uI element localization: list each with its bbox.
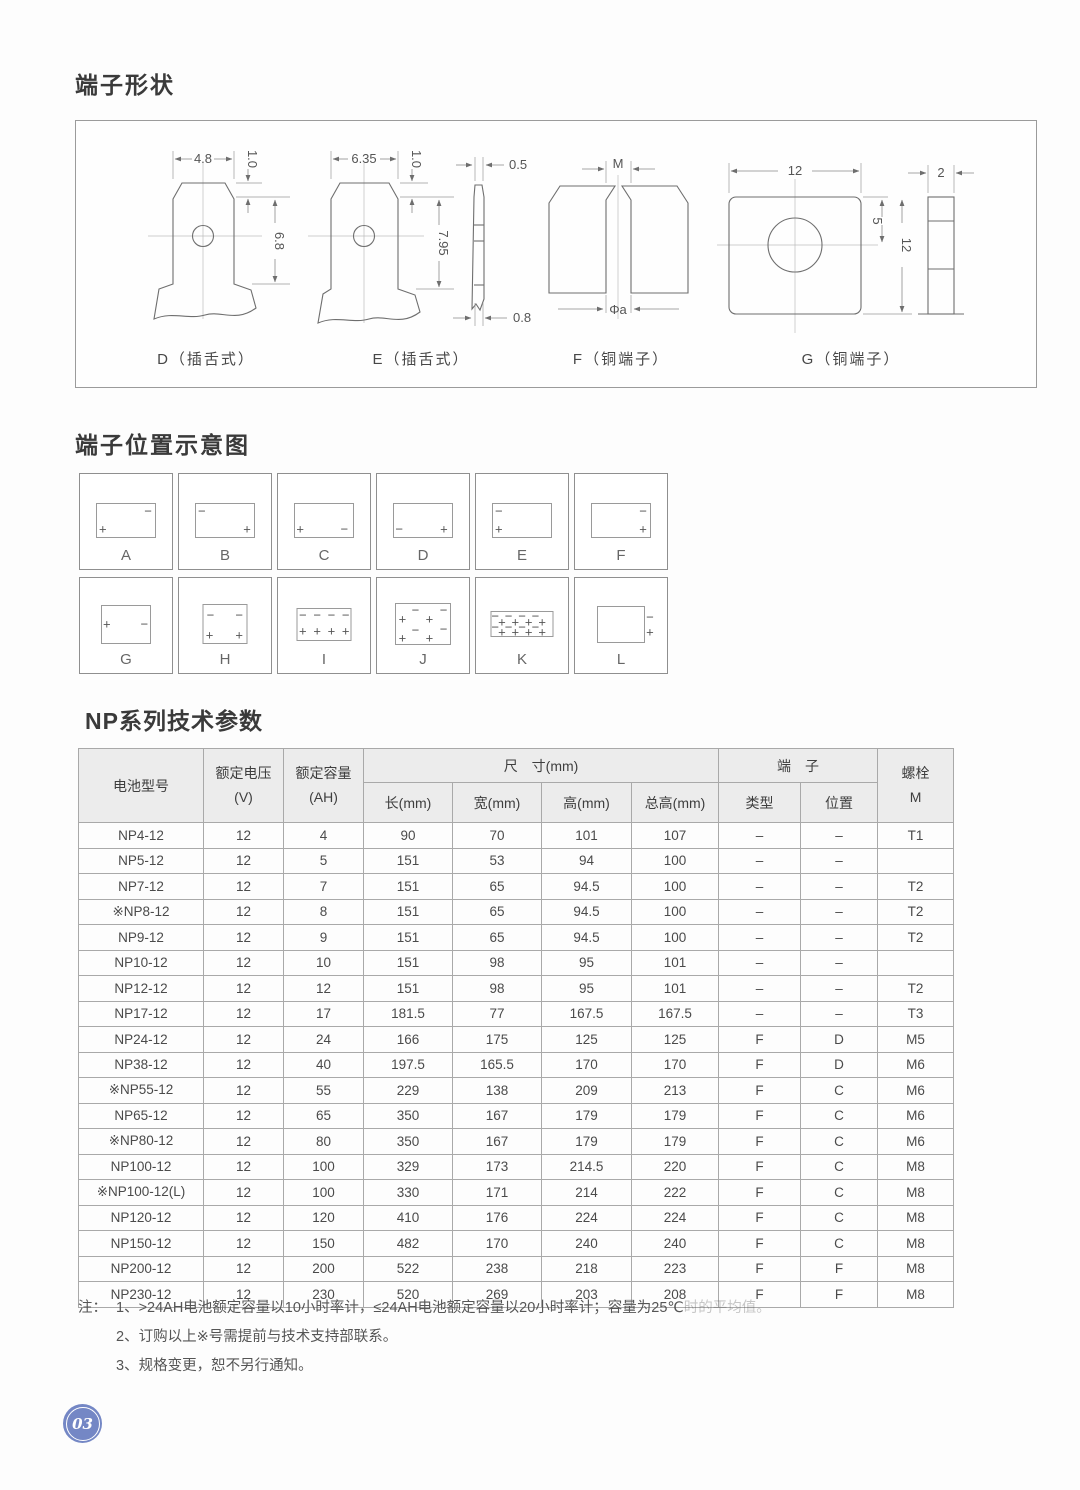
table-cell: T2 — [878, 925, 954, 951]
table-cell: 410 — [364, 1205, 453, 1231]
table-cell: 12 — [204, 950, 284, 976]
caption-f: F（铜端子） — [573, 351, 669, 368]
battery-outline: −−++ — [203, 604, 248, 644]
table-cell: 213 — [632, 1078, 719, 1104]
table-cell: 65 — [284, 1103, 364, 1129]
table-cell: 151 — [364, 848, 453, 874]
table-row: NP4-121249070101107––T1 — [79, 823, 954, 849]
table-cell: 100 — [632, 899, 719, 925]
col-header-bolt: 螺栓 M — [878, 749, 954, 823]
polarity-mark: + — [646, 625, 654, 638]
table-cell: NP150-12 — [79, 1231, 204, 1257]
table-cell: C — [801, 1205, 878, 1231]
table-cell: – — [801, 950, 878, 976]
table-cell: 12 — [204, 823, 284, 849]
position-cell-A: +−A — [79, 473, 173, 570]
col-header-bolt-line1: 螺栓 — [878, 762, 953, 785]
table-cell: 100 — [632, 925, 719, 951]
polarity-mark: − — [412, 623, 420, 636]
table-cell: 170 — [632, 1052, 719, 1078]
table-cell: 12 — [204, 899, 284, 925]
dim-d-width: 4.8 — [194, 151, 212, 166]
table-cell: 166 — [364, 1027, 453, 1053]
table-cell: 223 — [632, 1256, 719, 1282]
caption-e: E（插舌式） — [372, 351, 469, 368]
position-cell-D: −+D — [376, 473, 470, 570]
note-line-3: 3、规格变更，恕不另行通知。 — [78, 1352, 988, 1381]
table-cell: T2 — [878, 899, 954, 925]
drawing-e-side-profile: 0.5 0.8 — [453, 157, 531, 326]
table-cell: M6 — [878, 1078, 954, 1104]
table-row: NP200-1212200522238218223FFM8 — [79, 1256, 954, 1282]
table-cell: 522 — [364, 1256, 453, 1282]
table-cell: 65 — [453, 874, 542, 900]
table-cell: 167.5 — [632, 1001, 719, 1027]
table-cell: 229 — [364, 1078, 453, 1104]
position-label: G — [80, 651, 172, 668]
table-cell: NP24-12 — [79, 1027, 204, 1053]
notes: 注： 1、>24AH电池额定容量以10小时率计，≤24AH电池额定容量以20小时… — [78, 1294, 988, 1381]
polarity-mark: + — [299, 625, 307, 638]
table-cell: 100 — [284, 1180, 364, 1206]
battery-outline: −−−−++++ — [297, 608, 352, 641]
table-cell: F — [719, 1256, 801, 1282]
table-row: NP12-1212121519895101––T2 — [79, 976, 954, 1002]
table-cell: ※NP100-12(L) — [79, 1180, 204, 1206]
col-header-terminal-position: 位置 — [801, 783, 878, 823]
table-cell: 170 — [453, 1231, 542, 1257]
polarity-mark: + — [426, 613, 434, 626]
table-cell: 95 — [542, 976, 632, 1002]
table-cell: M8 — [878, 1256, 954, 1282]
table-cell: F — [719, 1231, 801, 1257]
table-cell: 12 — [204, 1154, 284, 1180]
terminal-shapes-panel: 4.8 1.0 6.8 D（插舌式） 6.35 — [75, 120, 1037, 388]
table-cell: – — [719, 823, 801, 849]
table-cell: ※NP8-12 — [79, 899, 204, 925]
table-cell: 12 — [204, 848, 284, 874]
dim-e-side-bottom: 0.8 — [513, 310, 531, 325]
dim-e-width: 6.35 — [351, 151, 376, 166]
table-cell: – — [719, 1001, 801, 1027]
table-cell: M6 — [878, 1052, 954, 1078]
table-cell: 173 — [453, 1154, 542, 1180]
col-group-terminal: 端 子 — [719, 749, 878, 783]
table-cell: 10 — [284, 950, 364, 976]
battery-outline: −+ — [597, 606, 645, 643]
polarity-mark: − — [341, 522, 349, 535]
table-cell: 482 — [364, 1231, 453, 1257]
table-cell: C — [801, 1154, 878, 1180]
table-cell: 24 — [284, 1027, 364, 1053]
battery-outline: −+ — [591, 503, 651, 538]
table-cell: T2 — [878, 976, 954, 1002]
page-number: 03 — [66, 1407, 100, 1441]
table-cell: 150 — [284, 1231, 364, 1257]
position-label: F — [575, 547, 667, 564]
table-cell: 40 — [284, 1052, 364, 1078]
position-cell-G: +−G — [79, 577, 173, 674]
drawing-f-terminal: M Φa F（铜端子） — [549, 156, 688, 368]
table-cell: 12 — [204, 1231, 284, 1257]
note-1-text: 1、>24AH电池额定容量以10小时率计，≤24AH电池额定容量以20小时率计；… — [116, 1300, 684, 1316]
table-cell: 7 — [284, 874, 364, 900]
table-cell: 240 — [542, 1231, 632, 1257]
table-cell: 181.5 — [364, 1001, 453, 1027]
position-label: L — [575, 651, 667, 668]
table-cell: 179 — [542, 1103, 632, 1129]
table-cell: – — [801, 848, 878, 874]
table-cell: 12 — [204, 1052, 284, 1078]
table-cell: 95 — [542, 950, 632, 976]
table-cell: 218 — [542, 1256, 632, 1282]
table-cell: – — [719, 899, 801, 925]
position-row-1: +−A−+B+−C−+D−+E−+F — [79, 473, 668, 570]
table-cell: M6 — [878, 1103, 954, 1129]
polarity-mark: + — [639, 523, 647, 536]
table-cell: – — [801, 823, 878, 849]
table-cell: D — [801, 1052, 878, 1078]
table-cell: F — [719, 1129, 801, 1155]
table-cell: NP7-12 — [79, 874, 204, 900]
table-cell: NP100-12 — [79, 1154, 204, 1180]
table-cell: NP120-12 — [79, 1205, 204, 1231]
table-row: NP10-1212101519895101–– — [79, 950, 954, 976]
table-row: ※NP55-121255229138209213FCM6 — [79, 1078, 954, 1104]
dim-f-hole: Φa — [609, 302, 627, 317]
table-cell: 151 — [364, 899, 453, 925]
col-header-height: 高(mm) — [542, 783, 632, 823]
table-cell: 12 — [204, 976, 284, 1002]
table-cell — [878, 950, 954, 976]
table-cell: 53 — [453, 848, 542, 874]
position-cell-J: +−+−+−+−J — [376, 577, 470, 674]
polarity-mark: + — [399, 632, 407, 645]
col-header-voltage-line1: 额定电压 — [204, 762, 283, 785]
table-cell: C — [801, 1078, 878, 1104]
table-cell: 220 — [632, 1154, 719, 1180]
position-cell-B: −+B — [178, 473, 272, 570]
table-cell: 65 — [453, 899, 542, 925]
table-cell: 80 — [284, 1129, 364, 1155]
polarity-mark: + — [342, 625, 350, 638]
table-cell: 100 — [632, 848, 719, 874]
dim-g-side-width: 2 — [937, 165, 944, 180]
polarity-mark: + — [426, 632, 434, 645]
table-cell: 138 — [453, 1078, 542, 1104]
dim-g-height: 12 — [899, 238, 914, 252]
battery-outline: −+−+−+−+−+−+−+−+ — [491, 611, 554, 637]
table-cell: 101 — [542, 823, 632, 849]
col-header-total-height: 总高(mm) — [632, 783, 719, 823]
table-cell: 179 — [542, 1129, 632, 1155]
table-row: NP7-121271516594.5100––T2 — [79, 874, 954, 900]
col-header-capacity: 额定容量 (AH) — [284, 749, 364, 823]
col-group-dimensions: 尺 寸(mm) — [364, 749, 719, 783]
table-cell: F — [719, 1154, 801, 1180]
table-cell: NP17-12 — [79, 1001, 204, 1027]
col-header-bolt-line2: M — [878, 786, 953, 809]
table-cell: 12 — [204, 1256, 284, 1282]
table-cell: 176 — [453, 1205, 542, 1231]
dim-d-height: 6.8 — [272, 232, 287, 250]
table-cell: 222 — [632, 1180, 719, 1206]
table-cell: 94.5 — [542, 899, 632, 925]
position-cell-H: −−++H — [178, 577, 272, 674]
table-cell: 70 — [453, 823, 542, 849]
table-cell: M8 — [878, 1231, 954, 1257]
table-cell: M8 — [878, 1180, 954, 1206]
table-cell: 5 — [284, 848, 364, 874]
table-cell: 12 — [204, 1001, 284, 1027]
table-cell: 125 — [632, 1027, 719, 1053]
table-cell: 12 — [204, 1205, 284, 1231]
battery-outline: −+ — [393, 503, 453, 538]
polarity-mark: − — [140, 618, 148, 631]
table-cell: NP4-12 — [79, 823, 204, 849]
table-cell: 224 — [632, 1205, 719, 1231]
terminal-position-grid: +−A−+B+−C−+D−+E−+F +−G−−++H−−−−++++I+−+−… — [79, 473, 668, 681]
polarity-mark: − — [440, 622, 448, 635]
polarity-mark: + — [235, 629, 243, 642]
table-cell: 167.5 — [542, 1001, 632, 1027]
polarity-mark: + — [328, 625, 336, 638]
position-label: E — [476, 547, 568, 564]
dim-d-thickness: 1.0 — [245, 150, 260, 168]
table-cell: C — [801, 1180, 878, 1206]
table-cell: 151 — [364, 950, 453, 976]
polarity-mark: − — [235, 608, 243, 621]
table-cell: F — [719, 1052, 801, 1078]
polarity-mark: − — [207, 608, 215, 621]
note-1-faded-text: 时的平均值。 — [684, 1300, 771, 1316]
page: 端子形状 4.8 — [0, 0, 1080, 1490]
table-cell: 55 — [284, 1078, 364, 1104]
table-cell: ※NP80-12 — [79, 1129, 204, 1155]
table-cell: 151 — [364, 925, 453, 951]
table-cell: NP9-12 — [79, 925, 204, 951]
position-label: J — [377, 651, 469, 668]
polarity-mark: + — [243, 523, 251, 536]
table-cell: D — [801, 1027, 878, 1053]
table-cell: 350 — [364, 1129, 453, 1155]
table-cell: – — [801, 874, 878, 900]
polarity-mark: − — [440, 603, 448, 616]
table-cell: 12 — [204, 1027, 284, 1053]
terminal-shapes-drawing: 4.8 1.0 6.8 D（插舌式） 6.35 — [76, 121, 1036, 387]
table-cell: – — [719, 925, 801, 951]
table-cell: F — [719, 1078, 801, 1104]
col-header-model: 电池型号 — [79, 749, 204, 823]
table-cell: 330 — [364, 1180, 453, 1206]
caption-d: D（插舌式） — [157, 351, 255, 368]
polarity-mark: + — [495, 523, 503, 536]
battery-outline: +− — [294, 503, 354, 538]
col-header-capacity-line2: (AH) — [284, 786, 363, 809]
battery-outline: −+ — [195, 503, 255, 538]
drawing-e-terminal: 6.35 1.0 7.95 E（插舌式） — [308, 150, 470, 368]
table-cell: 77 — [453, 1001, 542, 1027]
table-cell: 12 — [204, 1180, 284, 1206]
table-cell: – — [719, 874, 801, 900]
table-cell: – — [801, 976, 878, 1002]
position-row-2: +−G−−++H−−−−++++I+−+−+−+−J−+−+−+−+−+−+−+… — [79, 577, 668, 674]
table-cell: 107 — [632, 823, 719, 849]
position-label: B — [179, 547, 271, 564]
table-row: NP38-121240197.5165.5170170FDM6 — [79, 1052, 954, 1078]
polarity-mark: − — [313, 609, 321, 622]
note-line-1: 注： 1、>24AH电池额定容量以10小时率计，≤24AH电池额定容量以20小时… — [78, 1294, 988, 1323]
table-cell: 240 — [632, 1231, 719, 1257]
spec-table-body: NP4-121249070101107––T1NP5-1212515153941… — [79, 823, 954, 1308]
table-cell: C — [801, 1129, 878, 1155]
table-cell: 94 — [542, 848, 632, 874]
table-cell: NP10-12 — [79, 950, 204, 976]
polarity-mark: − — [299, 609, 307, 622]
table-cell: 200 — [284, 1256, 364, 1282]
table-cell: 98 — [453, 950, 542, 976]
table-cell: 12 — [284, 976, 364, 1002]
table-cell: NP38-12 — [79, 1052, 204, 1078]
table-cell: 100 — [284, 1154, 364, 1180]
note-3-text: 3、规格变更，恕不另行通知。 — [116, 1358, 313, 1374]
table-cell: – — [801, 1001, 878, 1027]
table-cell: T1 — [878, 823, 954, 849]
dim-e-height: 7.95 — [436, 230, 451, 255]
battery-outline: −+ — [492, 503, 552, 538]
col-header-capacity-line1: 额定容量 — [284, 762, 363, 785]
table-cell: 151 — [364, 976, 453, 1002]
polarity-mark: − — [198, 504, 206, 517]
table-cell: 12 — [204, 1078, 284, 1104]
col-header-voltage-line2: (V) — [204, 786, 283, 809]
polarity-mark: + — [296, 522, 304, 535]
dim-g-offset: 5 — [870, 217, 885, 224]
table-cell: M6 — [878, 1129, 954, 1155]
section-title-np-parameters: NP系列技术参数 — [85, 702, 263, 736]
table-row: NP65-121265350167179179FCM6 — [79, 1103, 954, 1129]
position-label: K — [476, 651, 568, 668]
position-cell-I: −−−−++++I — [277, 577, 371, 674]
position-label: D — [377, 547, 469, 564]
table-cell: 179 — [632, 1129, 719, 1155]
table-cell: 65 — [453, 925, 542, 951]
polarity-mark: + — [313, 625, 321, 638]
table-cell: F — [719, 1027, 801, 1053]
table-cell: M8 — [878, 1205, 954, 1231]
battery-outline: +− — [96, 503, 156, 538]
table-cell: 214 — [542, 1180, 632, 1206]
table-row: ※NP100-12(L)12100330171214222FCM8 — [79, 1180, 954, 1206]
polarity-mark: − — [144, 504, 152, 517]
table-row: NP9-121291516594.5100––T2 — [79, 925, 954, 951]
table-cell: 90 — [364, 823, 453, 849]
polarity-mark: + — [103, 618, 111, 631]
polarity-mark: − — [328, 609, 336, 622]
table-cell: M5 — [878, 1027, 954, 1053]
table-cell: C — [801, 1103, 878, 1129]
polarity-mark: + — [538, 626, 546, 639]
position-cell-C: +−C — [277, 473, 371, 570]
position-label: A — [80, 547, 172, 564]
dim-f-thread: M — [613, 156, 624, 171]
drawing-d-terminal: 4.8 1.0 6.8 D（插舌式） — [148, 150, 290, 368]
table-cell: NP65-12 — [79, 1103, 204, 1129]
table-cell: 167 — [453, 1129, 542, 1155]
table-cell: 125 — [542, 1027, 632, 1053]
spec-table: 电池型号 额定电压 (V) 额定容量 (AH) 尺 寸(mm) 端 子 螺栓 M… — [78, 748, 954, 1308]
position-label: H — [179, 651, 271, 668]
dim-g-width: 12 — [788, 163, 802, 178]
table-row: NP5-121251515394100–– — [79, 848, 954, 874]
table-cell: M8 — [878, 1154, 954, 1180]
table-cell: 170 — [542, 1052, 632, 1078]
table-cell: T3 — [878, 1001, 954, 1027]
position-cell-F: −+F — [574, 473, 668, 570]
table-cell: ※NP55-12 — [79, 1078, 204, 1104]
table-cell: 175 — [453, 1027, 542, 1053]
table-cell: F — [719, 1103, 801, 1129]
table-cell: – — [801, 925, 878, 951]
table-cell: – — [719, 848, 801, 874]
polarity-mark: − — [639, 504, 647, 517]
drawing-g-side-profile: 2 — [908, 165, 974, 314]
table-row: NP24-121224166175125125FDM5 — [79, 1027, 954, 1053]
table-cell: 179 — [632, 1103, 719, 1129]
table-row: NP150-1212150482170240240FCM8 — [79, 1231, 954, 1257]
table-cell: 98 — [453, 976, 542, 1002]
table-cell: – — [801, 899, 878, 925]
table-cell: 214.5 — [542, 1154, 632, 1180]
battery-outline: +−+−+−+− — [395, 603, 451, 645]
table-cell: 350 — [364, 1103, 453, 1129]
section-title-terminal-shapes: 端子形状 — [75, 66, 175, 100]
position-label: C — [278, 547, 370, 564]
table-cell: C — [801, 1231, 878, 1257]
position-cell-E: −+E — [475, 473, 569, 570]
polarity-mark: − — [495, 504, 503, 517]
caption-g: G（铜端子） — [802, 351, 901, 368]
table-cell: 224 — [542, 1205, 632, 1231]
table-cell: 12 — [204, 1129, 284, 1155]
table-cell: 4 — [284, 823, 364, 849]
table-cell: 151 — [364, 874, 453, 900]
table-cell: 94.5 — [542, 925, 632, 951]
col-header-terminal-type: 类型 — [719, 783, 801, 823]
polarity-mark: + — [440, 522, 448, 535]
polarity-mark: + — [206, 629, 214, 642]
table-cell: 167 — [453, 1103, 542, 1129]
table-cell: F — [719, 1205, 801, 1231]
table-cell: 171 — [453, 1180, 542, 1206]
polarity-mark: + — [399, 613, 407, 626]
section-title-terminal-positions: 端子位置示意图 — [75, 426, 250, 460]
drawing-g-terminal: 12 5 12 G（铜端子） — [717, 163, 914, 368]
polarity-mark: − — [412, 604, 420, 617]
polarity-mark: − — [646, 611, 654, 624]
table-cell: – — [719, 950, 801, 976]
table-cell: F — [801, 1256, 878, 1282]
table-cell: 94.5 — [542, 874, 632, 900]
table-cell: T2 — [878, 874, 954, 900]
table-cell: 100 — [632, 874, 719, 900]
note-prefix: 注： — [78, 1294, 107, 1323]
position-cell-L: −+L — [574, 577, 668, 674]
table-cell: 120 — [284, 1205, 364, 1231]
col-header-length: 长(mm) — [364, 783, 453, 823]
table-row: NP120-1212120410176224224FCM8 — [79, 1205, 954, 1231]
table-cell: 101 — [632, 950, 719, 976]
